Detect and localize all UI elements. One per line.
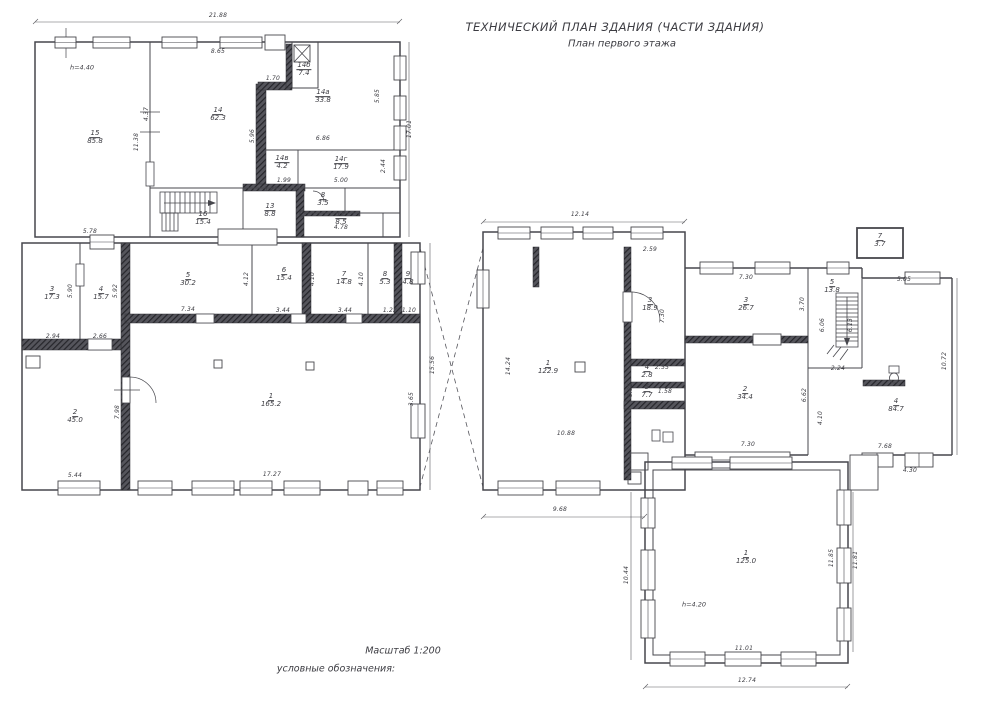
left-building-upper xyxy=(35,28,400,237)
page-subtitle: План первого этажа xyxy=(568,39,676,50)
floor-plan-svg xyxy=(0,0,1000,712)
page-title: ТЕХНИЧЕСКИЙ ПЛАН ЗДАНИЯ (ЧАСТИ ЗДАНИЯ) xyxy=(466,20,765,34)
stairs-right xyxy=(836,293,858,347)
window-symbols xyxy=(55,35,940,666)
lower-hall xyxy=(645,462,848,663)
stairs-left xyxy=(160,192,217,231)
legend-note: условные обозначения: xyxy=(277,664,395,675)
scale-note: Масштаб 1:200 xyxy=(365,646,441,657)
floor-plan-page: 1585.81462.314б7.414а33.814в4.214г17.916… xyxy=(0,0,1000,712)
window-midlines xyxy=(55,43,940,660)
dimension-lines xyxy=(33,19,957,689)
x-cross-marks xyxy=(420,248,483,487)
left-building-lower xyxy=(22,229,420,490)
right-building-main xyxy=(483,232,685,490)
